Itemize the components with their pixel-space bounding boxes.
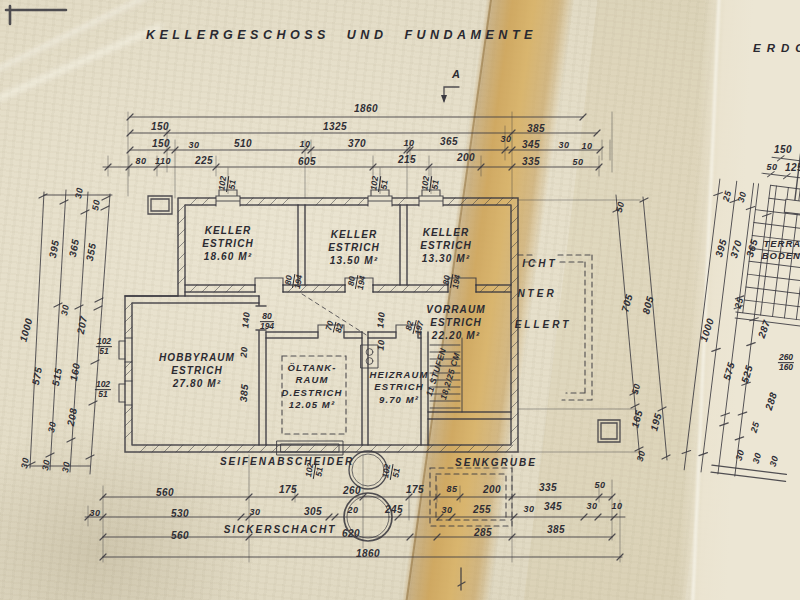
scanned-floor-plan-sheet: KELLERGESCHOSS UND FUNDAMENTE ERDG A KEL…: [0, 0, 800, 600]
stairs: [430, 338, 462, 412]
plan-linework: [0, 0, 800, 600]
section-marker: [441, 87, 465, 590]
erdgeschoss-drawing: [680, 144, 800, 482]
fixtures: [148, 196, 620, 541]
dashed-annotations: [282, 255, 592, 526]
dimension-ticks: [27, 114, 670, 560]
sheet-frame-corner: [6, 6, 66, 24]
